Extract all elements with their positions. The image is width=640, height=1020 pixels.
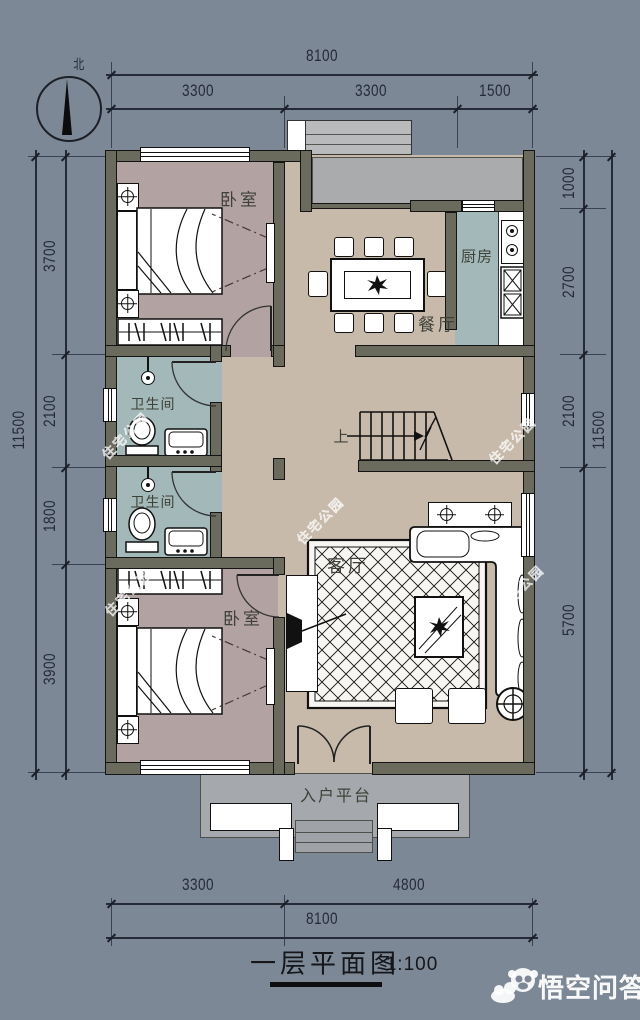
floor-rear-porch xyxy=(312,157,523,204)
ext-line xyxy=(52,467,108,468)
washing-machine-upper xyxy=(164,428,208,458)
ceiling-lamp-icon xyxy=(141,371,155,385)
dim-line-bottom-total xyxy=(106,937,538,939)
dim-bottom-seg-1: 3300 xyxy=(182,877,214,896)
kitchen-sink xyxy=(500,266,525,319)
dim-line-top-segments xyxy=(106,108,538,110)
room-label-bedroom-top: 卧室 xyxy=(220,186,260,211)
ext-line xyxy=(52,564,108,565)
drawing-title: 一层平面图 xyxy=(250,944,400,981)
washing-machine-lower xyxy=(164,527,208,557)
window-bath-upper xyxy=(103,388,117,422)
ottoman xyxy=(395,688,433,724)
dim-right-seg-1: 1000 xyxy=(561,167,580,199)
window-bath-lower xyxy=(103,498,117,532)
ottoman xyxy=(448,688,486,724)
dining-chair xyxy=(394,313,414,333)
table-lamp-icon xyxy=(121,190,134,203)
dining-chair xyxy=(364,237,384,257)
tv-sightlines xyxy=(210,632,272,714)
dim-bottom-total: 8100 xyxy=(306,911,338,930)
dim-right-seg-4: 5700 xyxy=(561,604,580,636)
floor-plan-canvas: 北 8100 3300 3300 1500 3300 4800 8100 115… xyxy=(0,0,640,1020)
dim-top-total: 8100 xyxy=(306,48,338,67)
dim-top-seg-3: 1500 xyxy=(479,83,511,102)
dining-chair xyxy=(394,237,414,257)
door-bedroom-top xyxy=(225,295,285,357)
ext-line xyxy=(52,354,108,355)
dim-top-seg-1: 3300 xyxy=(182,83,214,102)
ext-line xyxy=(284,96,285,148)
room-label-dining: 餐厅 xyxy=(418,311,458,336)
entry-steps xyxy=(295,820,373,853)
wardrobe-top-bedroom xyxy=(117,318,223,346)
wall-hall-stub-b xyxy=(273,458,285,480)
drawing-scale: 1:100 xyxy=(386,954,439,976)
ext-line xyxy=(28,156,108,157)
compass-needle-icon xyxy=(36,76,98,138)
tv-icon xyxy=(284,605,350,655)
dim-top-seg-2: 3300 xyxy=(355,83,387,102)
tv-niche-bottom-bedroom xyxy=(266,648,275,705)
lamp-drop-line xyxy=(147,357,149,371)
entry-planter-left xyxy=(210,803,292,831)
ext-line xyxy=(536,156,616,157)
dim-line-top-total xyxy=(106,74,538,76)
room-label-bedroom-bottom: 卧室 xyxy=(223,605,263,630)
porch-sliding-track xyxy=(312,203,412,209)
burner-icon xyxy=(506,244,518,256)
dim-left-total: 11500 xyxy=(11,411,30,450)
dim-left-seg-1: 3700 xyxy=(42,240,61,272)
table-lamp-icon xyxy=(121,723,134,736)
back-steps xyxy=(305,120,412,155)
room-label-kitchen: 厨房 xyxy=(461,246,493,267)
window-bedroom-bottom xyxy=(140,760,250,775)
ceiling-lamp-icon xyxy=(141,478,155,492)
bed-headboard xyxy=(117,626,137,716)
dim-left-seg-2: 2100 xyxy=(42,395,61,427)
ext-line xyxy=(28,772,108,773)
dining-chair xyxy=(308,271,328,297)
title-underline xyxy=(270,982,382,987)
dim-right-seg-3: 2100 xyxy=(561,395,580,427)
window-living xyxy=(521,493,535,557)
dining-chair xyxy=(364,313,384,333)
wall-bedroom-bottom-north xyxy=(105,557,285,569)
dim-left-seg-3: 1800 xyxy=(42,500,61,532)
dim-bottom-seg-2: 4800 xyxy=(393,877,425,896)
centerpiece-plant-icon xyxy=(365,273,389,297)
compass-north-label: 北 xyxy=(73,53,84,73)
wall-exterior-bottom-right xyxy=(372,762,535,775)
wall-stair-south xyxy=(358,460,535,472)
brand-watermark: 悟空问答 xyxy=(538,968,640,1005)
window-kitchen xyxy=(462,200,495,212)
wall-dining-south xyxy=(355,345,535,357)
ext-line xyxy=(457,96,458,148)
dining-chair xyxy=(334,237,354,257)
table-lamp-icon xyxy=(488,508,501,521)
dim-right-seg-2: 2700 xyxy=(561,266,580,298)
wall-between-baths xyxy=(105,455,222,467)
door-entry-double xyxy=(293,720,375,770)
brand-monkey-logo-icon xyxy=(490,962,540,1008)
dim-line-left-total xyxy=(35,150,37,780)
dim-line-bottom-segments xyxy=(106,903,538,905)
stair-direction-arrowhead xyxy=(414,431,424,441)
room-label-bath-lower: 卫生间 xyxy=(131,492,176,512)
burner-icon xyxy=(506,225,518,237)
entry-column-right xyxy=(377,828,392,861)
entry-platform-label: 入户平台 xyxy=(300,782,372,806)
entry-column-left xyxy=(279,828,294,861)
ext-line xyxy=(536,772,616,773)
wall-exterior-top-right-a xyxy=(410,200,462,212)
toilet-lower xyxy=(122,505,164,555)
dining-chair xyxy=(334,313,354,333)
stair-up-label: 上 xyxy=(333,426,348,447)
dim-left-seg-4: 3900 xyxy=(42,653,61,685)
table-lamp-icon xyxy=(440,508,453,521)
dining-chair xyxy=(427,271,447,297)
dim-right-total: 11500 xyxy=(591,411,610,450)
entry-planter-right xyxy=(377,803,459,831)
window-bedroom-top xyxy=(140,147,250,162)
room-label-living: 客厅 xyxy=(327,552,369,578)
bed-headboard xyxy=(117,211,137,290)
coffee-table xyxy=(413,595,465,659)
tv-niche-top-bedroom xyxy=(266,223,275,283)
table-lamp-icon xyxy=(121,297,134,310)
dim-line-right-total xyxy=(611,150,613,780)
wall-porch-stub xyxy=(300,150,312,212)
